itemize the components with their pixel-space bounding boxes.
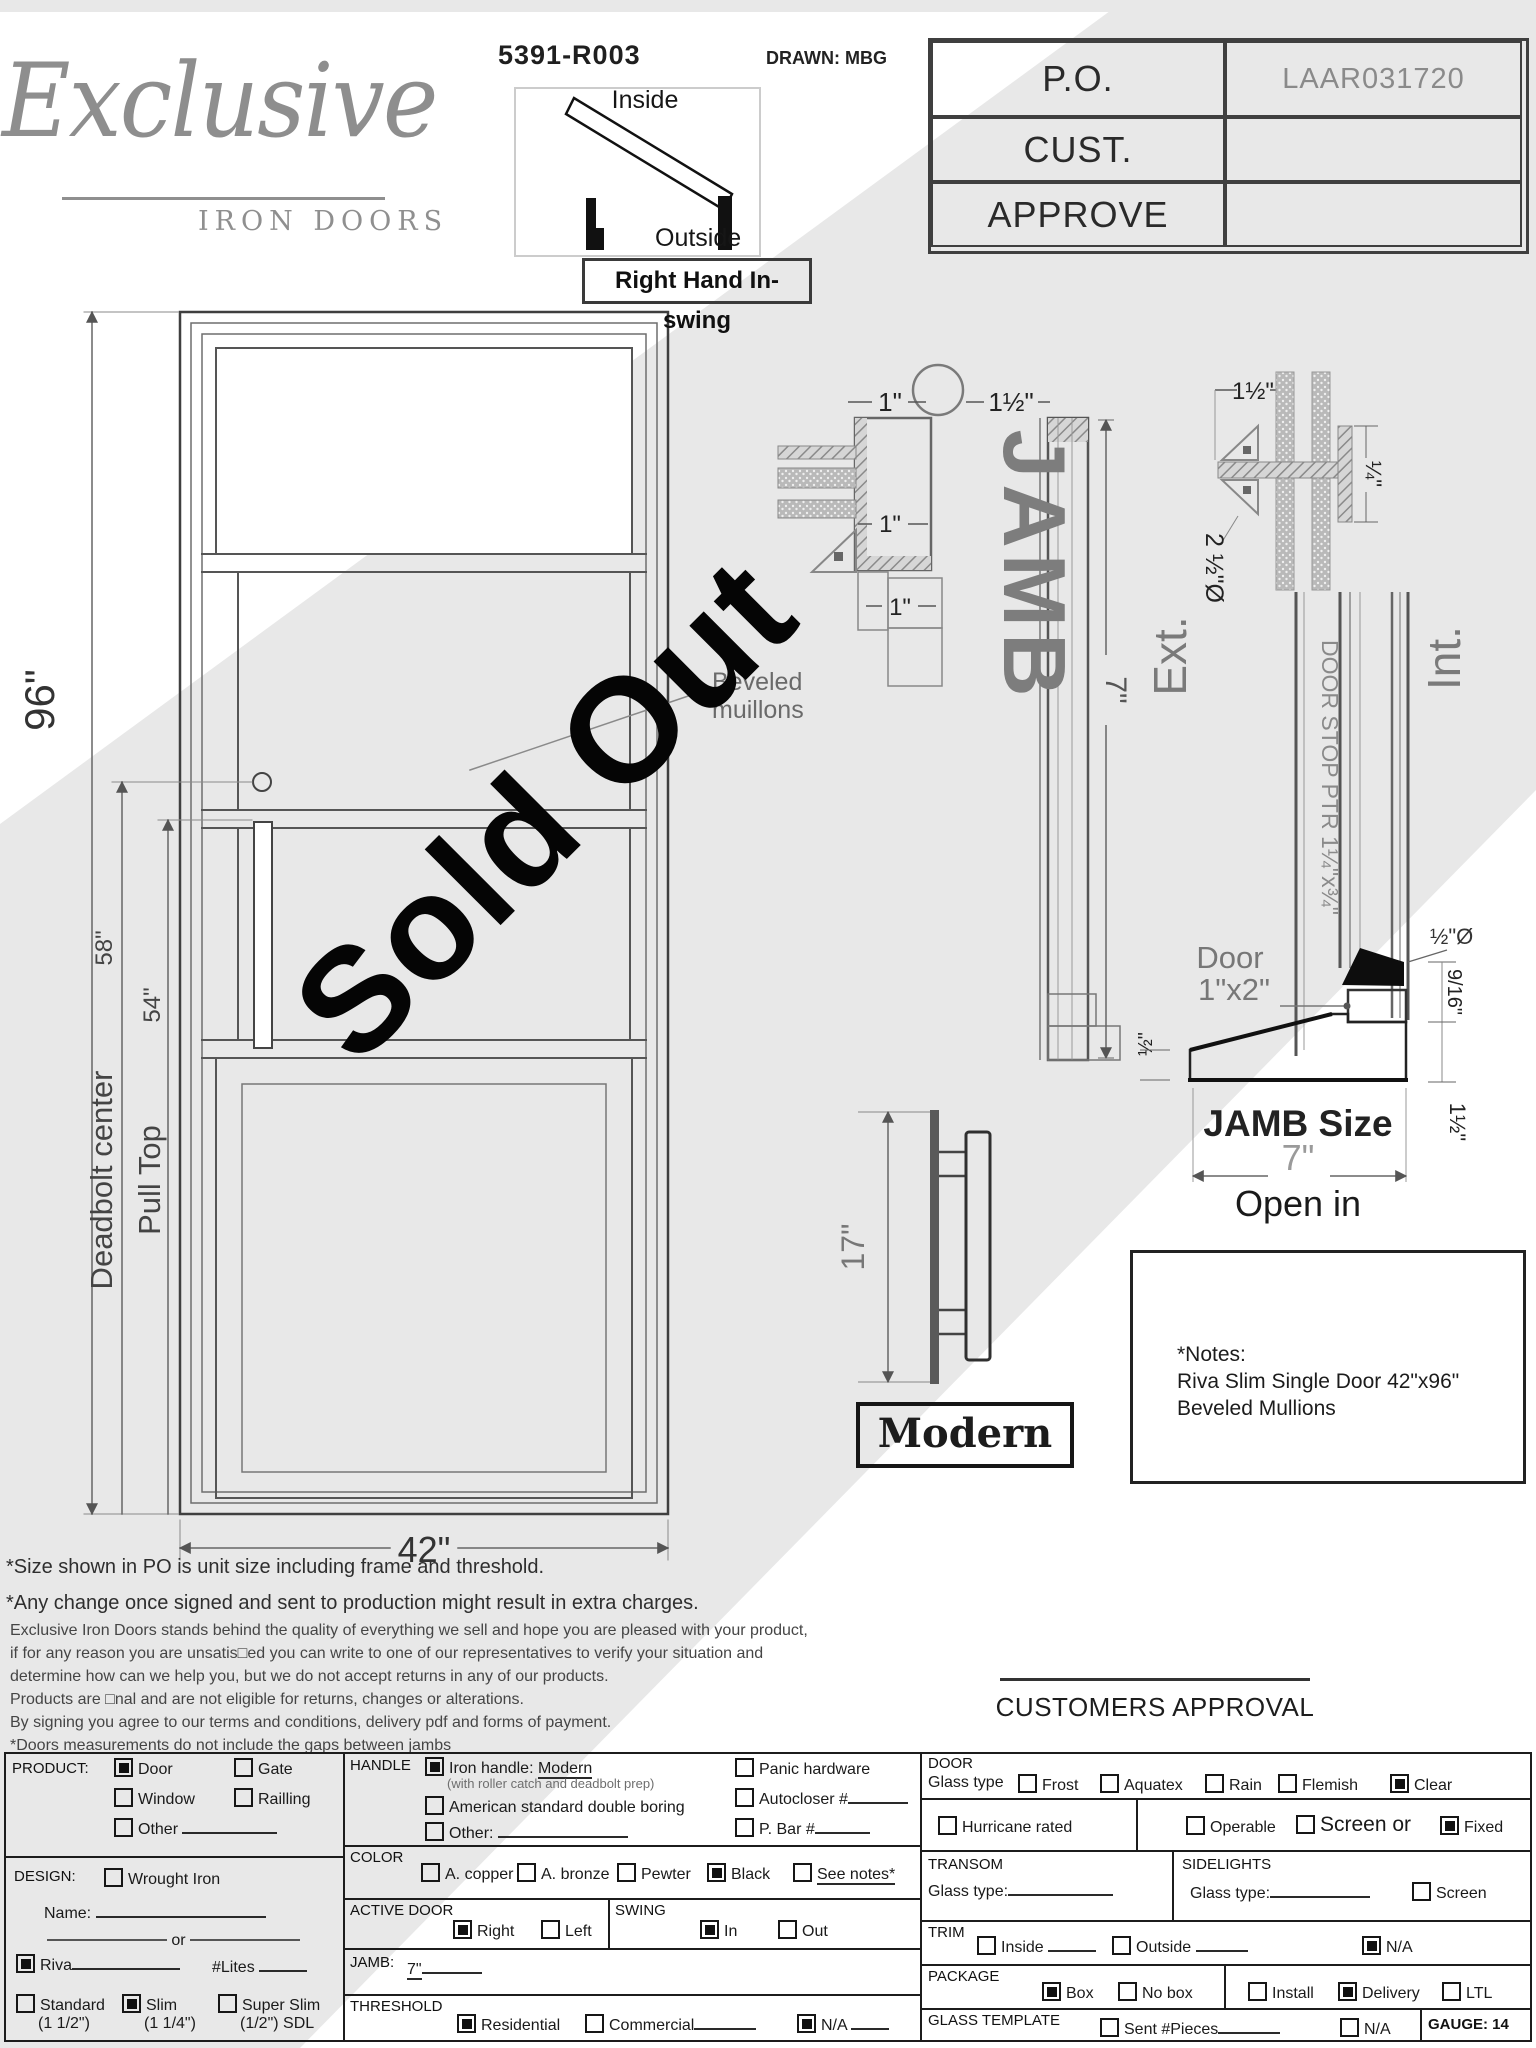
design-name-field[interactable]: Name:	[44, 1904, 266, 1923]
checkbox-install[interactable]	[1248, 1982, 1267, 2001]
design-slim-option[interactable]: Slim(1 1/4")	[122, 1994, 196, 2033]
color-title: COLOR	[350, 1849, 403, 1866]
pull-dim-value: 54"	[139, 987, 166, 1022]
form-sidelights-cell: SIDELIGHTS Glass type: Screen	[1172, 1850, 1532, 1922]
checkbox-product-other[interactable]	[114, 1818, 133, 1837]
checkbox-standard[interactable]	[16, 1994, 35, 2013]
cust-label: CUST.	[1023, 129, 1132, 171]
jamb-size-value: 7"	[1282, 1137, 1315, 1178]
notes-line1: *Notes:	[1177, 1341, 1246, 1368]
active-right-option[interactable]: Right	[453, 1920, 514, 1941]
active-door-title: ACTIVE DOOR	[350, 1902, 453, 1919]
handle-other-option[interactable]: Other:	[425, 1822, 628, 1843]
checkbox-bronze[interactable]	[517, 1863, 536, 1882]
pbar-blank[interactable]	[815, 1820, 870, 1834]
door-sec-title: DOOR	[928, 1755, 973, 1772]
sidelights-screen-option[interactable]: Screen	[1412, 1882, 1487, 1903]
autocloser-blank[interactable]	[848, 1790, 908, 1804]
checkbox-wrought-iron[interactable]	[104, 1868, 123, 1887]
int-label: Int.	[1418, 626, 1470, 690]
threshold-title: THRESHOLD	[350, 1998, 443, 2015]
checkbox-ltl[interactable]	[1442, 1982, 1461, 2001]
product-window-option[interactable]: Window	[114, 1788, 195, 1809]
notes-box: *Notes: Riva Slim Single Door 42"x96" Be…	[1130, 1250, 1526, 1484]
disclaimer-line1: *Size shown in PO is unit size including…	[6, 1556, 544, 1579]
checkbox-gate[interactable]	[234, 1758, 253, 1777]
disclaimer-line2: *Any change once signed and sent to prod…	[6, 1592, 699, 1615]
checkbox-fixed[interactable]	[1440, 1816, 1459, 1835]
jamb-dim-1-5: 1½"	[988, 387, 1033, 417]
checkbox-clear[interactable]	[1390, 1774, 1409, 1793]
checkbox-delivery[interactable]	[1338, 1982, 1357, 2001]
drawn-by: DRAWN: MBG	[766, 48, 887, 69]
checkbox-handle-other[interactable]	[425, 1822, 444, 1841]
design-riva-option[interactable]: Riva	[16, 1954, 180, 1975]
handle-title: HANDLE	[350, 1757, 411, 1774]
po-table: P.O. LAAR031720 CUST. APPROVE	[928, 38, 1529, 254]
logo-script: Exclusive	[2, 42, 437, 161]
lites-blank[interactable]	[259, 1958, 307, 1972]
checkbox-right[interactable]	[453, 1920, 472, 1939]
sent-pieces-blank[interactable]	[1218, 2020, 1280, 2034]
notes-line3: Beveled Mullions	[1177, 1395, 1336, 1422]
door-stop-label: DOOR STOP PTR 1¼"x¾"	[1317, 640, 1343, 915]
deadbolt-dim-value: 58"	[91, 930, 118, 965]
trim-inside-blank[interactable]	[1048, 1938, 1096, 1952]
swing-title: SWING	[615, 1902, 666, 1919]
checkbox-screen[interactable]	[1412, 1882, 1431, 1901]
form-gauge-cell: GAUGE: 14	[1420, 2008, 1532, 2042]
drawing-number: 5391-R003	[498, 40, 641, 71]
jamb-value-blank[interactable]	[422, 1960, 482, 1974]
checkbox-box[interactable]	[1042, 1982, 1061, 2001]
disclaimer-line3: Exclusive Iron Doors stands behind the q…	[10, 1622, 808, 1640]
checkbox-black[interactable]	[707, 1863, 726, 1882]
form-product-cell: PRODUCT: Door Gate Window Railling Other	[4, 1752, 345, 1858]
package-nobox-option[interactable]: No box	[1118, 1982, 1193, 2003]
checkbox-autocloser[interactable]	[735, 1788, 754, 1807]
door-glass-label: Glass type	[928, 1774, 1004, 1792]
form-package-cell: PACKAGE Box No box	[920, 1964, 1226, 2010]
handle-american-option[interactable]: American standard double boring	[425, 1796, 685, 1817]
form-operable-cell: Operable Screen or Fixed	[1136, 1798, 1532, 1852]
ext-label: Ext.	[1144, 616, 1196, 695]
dim-half: ½"	[1135, 1032, 1157, 1056]
handle-sub-note: (with roller catch and deadbolt prep)	[447, 1776, 654, 1791]
form-color-cell: COLOR A. copper A. bronze Pewter Black S…	[343, 1845, 922, 1900]
glass-aquatex-option[interactable]: Aquatex	[1100, 1774, 1183, 1795]
trim-outside-option[interactable]: Outside	[1112, 1936, 1248, 1957]
glass-frost-option[interactable]: Frost	[1018, 1774, 1078, 1795]
door-pull-handle	[254, 822, 272, 1048]
package-title: PACKAGE	[928, 1968, 999, 1985]
door-size-label-1: Door	[1196, 940, 1263, 975]
checkbox-screen-or[interactable]	[1296, 1815, 1315, 1834]
handle-iron-option[interactable]: Iron handle: Modern	[425, 1757, 592, 1778]
glass-clear-option[interactable]: Clear	[1390, 1774, 1452, 1795]
approve-label: APPROVE	[987, 194, 1168, 236]
deadbolt-circle	[253, 773, 271, 791]
order-sheet: Inside Outside	[0, 0, 1536, 2048]
disclaimer-line5: determine how can we help you, but we do…	[10, 1668, 609, 1686]
section-dim-2half-dia: 2 ½"Ø	[1200, 533, 1228, 603]
color-pewter-option[interactable]: Pewter	[617, 1863, 691, 1884]
trim-inside-option[interactable]: Inside	[977, 1936, 1096, 1957]
handle-dim: 17"	[835, 1224, 871, 1271]
handle-autocloser-option[interactable]: Autocloser #	[735, 1788, 908, 1809]
glass-flemish-option[interactable]: Flemish	[1278, 1774, 1358, 1795]
logo-subtitle: IRON DOORS	[198, 206, 448, 237]
product-gate-option[interactable]: Gate	[234, 1758, 293, 1779]
operable-option[interactable]: Operable	[1186, 1816, 1276, 1837]
threshold-residential-option[interactable]: Residential	[457, 2014, 560, 2035]
transom-glass-blank[interactable]	[1008, 1882, 1113, 1896]
trim-na-option[interactable]: N/A	[1362, 1936, 1413, 1957]
package-install-option[interactable]: Install	[1248, 1982, 1314, 2003]
form-package-ship-cell: Install Delivery LTL	[1224, 1964, 1532, 2010]
product-other-option[interactable]: Other	[114, 1818, 277, 1839]
swing-caption: Right Hand In-swing	[582, 258, 812, 304]
jamb-row-title: JAMB:	[350, 1954, 394, 1971]
disclaimer-line7: By signing you agree to our terms and co…	[10, 1714, 611, 1732]
package-ltl-option[interactable]: LTL	[1442, 1982, 1492, 2003]
section-dim-1-5: 1½"	[1232, 378, 1274, 405]
checkbox-trim-outside[interactable]	[1112, 1936, 1131, 1955]
dim-9-16: 9/16"	[1443, 969, 1465, 1015]
handle-other-blank[interactable]	[498, 1824, 628, 1838]
design-standard-option[interactable]: Standard(1 1/2")	[16, 1994, 105, 2033]
swing-inside-label: Inside	[612, 86, 679, 114]
jamb-dim-1c: 1"	[889, 594, 911, 621]
dim-1-1-2: 1½"	[1445, 1103, 1470, 1141]
fixed-option[interactable]: Fixed	[1440, 1816, 1503, 1837]
checkbox-trim-na[interactable]	[1362, 1936, 1381, 1955]
checkbox-left[interactable]	[541, 1920, 560, 1939]
half-dia-note: ½"Ø	[1430, 924, 1473, 949]
product-other-blank[interactable]	[182, 1820, 277, 1834]
form-glass-template-cell: GLASS TEMPLATE Sent #Pieces N/A	[920, 2008, 1422, 2042]
jamb-title: JAMB	[985, 429, 1084, 702]
po-value[interactable]: LAAR031720	[1282, 63, 1465, 96]
glass-rain-option[interactable]: Rain	[1205, 1774, 1262, 1795]
checkbox-pewter[interactable]	[617, 1863, 636, 1882]
threshold-section-detail: 1½" ¼" 2 ½"Ø Ext. Int.	[1135, 372, 1473, 1224]
handle-detail: 17"	[835, 1110, 990, 1384]
active-left-option[interactable]: Left	[541, 1920, 592, 1941]
color-bronze-option[interactable]: A. bronze	[517, 1863, 609, 1884]
product-title: PRODUCT:	[12, 1760, 89, 1777]
trim-title: TRIM	[928, 1924, 965, 1941]
jamb-row-value[interactable]: 7"	[407, 1960, 482, 1979]
product-door-option[interactable]: Door	[114, 1758, 173, 1779]
threshold-commercial-option[interactable]: Commercial	[585, 2014, 756, 2035]
color-copper-option[interactable]: A. copper	[421, 1863, 513, 1884]
checkbox-panic[interactable]	[735, 1758, 754, 1777]
form-hurricane-cell: Hurricane rated	[920, 1798, 1138, 1852]
swing-in-option[interactable]: In	[700, 1920, 737, 1941]
checkbox-operable[interactable]	[1186, 1816, 1205, 1835]
swing-diagram: Inside Outside	[515, 86, 760, 256]
glass-sent-option[interactable]: Sent #Pieces	[1100, 2018, 1280, 2039]
sidelights-title: SIDELIGHTS	[1182, 1856, 1271, 1873]
form-door-glass-cell: DOOR Glass type Frost Aquatex Rain Flemi…	[920, 1752, 1532, 1800]
trim-outside-blank[interactable]	[1196, 1938, 1248, 1952]
checkbox-residential[interactable]	[457, 2014, 476, 2033]
hurricane-option[interactable]: Hurricane rated	[938, 1816, 1072, 1837]
checkbox-window[interactable]	[114, 1788, 133, 1807]
design-name-blank[interactable]	[96, 1904, 266, 1918]
checkbox-aquatex[interactable]	[1100, 1774, 1119, 1793]
form-transom-cell: TRANSOM Glass type:	[920, 1850, 1174, 1922]
riva-blank[interactable]	[72, 1956, 180, 1970]
gauge-value: GAUGE: 14	[1428, 2016, 1509, 2033]
approval-label: CUSTOMERS APPROVAL	[985, 1692, 1325, 1723]
checkbox-super-slim[interactable]	[218, 1994, 237, 2013]
checkbox-american-boring[interactable]	[425, 1796, 444, 1815]
form-active-door-cell: ACTIVE DOOR Right Left	[343, 1898, 610, 1950]
checkbox-trim-inside[interactable]	[977, 1936, 996, 1955]
design-super-slim-option[interactable]: Super Slim(1/2") SDL	[218, 1994, 320, 2033]
package-box-option[interactable]: Box	[1042, 1982, 1094, 2003]
checkbox-copper[interactable]	[421, 1863, 440, 1882]
glass-na-option[interactable]: N/A	[1340, 2018, 1391, 2039]
threshold-na-option[interactable]: N/A	[797, 2014, 889, 2035]
pull-dim-label: Pull Top	[132, 1125, 167, 1235]
product-railing-option[interactable]: Railling	[234, 1788, 310, 1809]
checkbox-threshold-na[interactable]	[797, 2014, 816, 2033]
checkbox-iron-handle[interactable]	[425, 1757, 444, 1776]
screen-or-option[interactable]: Screen or	[1296, 1813, 1411, 1837]
checkbox-out[interactable]	[778, 1920, 797, 1939]
threshold-na-blank[interactable]	[851, 2016, 889, 2030]
section-dim-quarter: ¼"	[1361, 461, 1386, 487]
form-threshold-cell: THRESHOLD Residential Commercial N/A	[343, 1994, 922, 2042]
glass-template-title: GLASS TEMPLATE	[928, 2012, 1060, 2029]
form-trim-cell: TRIM Inside Outside N/A	[920, 1920, 1532, 1966]
transom-glass-field[interactable]: Glass type:	[928, 1882, 1113, 1901]
checkbox-commercial[interactable]	[585, 2014, 604, 2033]
design-or-separator: or	[16, 1932, 331, 1950]
door-height-dim: 96"	[16, 669, 63, 731]
design-wrought-option[interactable]: Wrought Iron	[104, 1868, 220, 1889]
po-label: P.O.	[1042, 58, 1113, 100]
sidelights-glass-blank[interactable]	[1270, 1884, 1370, 1898]
package-delivery-option[interactable]: Delivery	[1338, 1982, 1420, 2003]
form-design-cell: DESIGN: Wrought Iron Name: or Riva #Lite…	[4, 1856, 345, 2042]
form-handle-cell: HANDLE Iron handle: Modern (with roller …	[343, 1752, 922, 1847]
swing-outside-label: Outside	[655, 224, 741, 252]
checkbox-slim[interactable]	[122, 1994, 141, 2013]
jamb-dim-1b: 1"	[879, 511, 901, 538]
form-jamb-cell: JAMB: 7"	[343, 1948, 922, 1996]
approval-signature-line[interactable]	[1000, 1678, 1310, 1681]
transom-title: TRANSOM	[928, 1856, 1003, 1873]
jamb-detail: 1" 1½" 1" 1"	[778, 365, 1132, 1060]
handle-pbar-option[interactable]: P. Bar #	[735, 1818, 870, 1839]
disclaimer-line6: Products are □nal and are not eligible f…	[10, 1691, 524, 1709]
checkbox-glass-na[interactable]	[1340, 2018, 1359, 2037]
disclaimer-line4: if for any reason you are unsatis□ed you…	[10, 1645, 763, 1663]
checkbox-nobox[interactable]	[1118, 1982, 1137, 2001]
color-see-notes-option[interactable]: See notes*	[793, 1863, 895, 1884]
checkbox-riva[interactable]	[16, 1954, 35, 1973]
notes-line2: Riva Slim Single Door 42"x96"	[1177, 1368, 1459, 1395]
swing-out-option[interactable]: Out	[778, 1920, 828, 1941]
color-black-option[interactable]: Black	[707, 1863, 770, 1884]
handle-style-caption: Modern	[856, 1402, 1074, 1468]
checkbox-railing[interactable]	[234, 1788, 253, 1807]
checkbox-in[interactable]	[700, 1920, 719, 1939]
open-in-label: Open in	[1235, 1183, 1361, 1224]
checkbox-frost[interactable]	[1018, 1774, 1037, 1793]
checkbox-door[interactable]	[114, 1758, 133, 1777]
design-title: DESIGN:	[14, 1868, 76, 1885]
sidelights-glass-field[interactable]: Glass type:	[1190, 1884, 1370, 1903]
checkbox-sent-pieces[interactable]	[1100, 2018, 1119, 2037]
design-lites-field[interactable]: #Lites	[212, 1958, 307, 1977]
form-swing-cell: SWING In Out	[608, 1898, 922, 1950]
checkbox-hurricane[interactable]	[938, 1816, 957, 1835]
checkbox-see-notes[interactable]	[793, 1863, 812, 1882]
checkbox-rain[interactable]	[1205, 1774, 1224, 1793]
handle-panic-option[interactable]: Panic hardware	[735, 1758, 870, 1779]
jamb-dim-7: 7"	[1099, 676, 1132, 703]
door-size-label-2: 1"x2"	[1198, 972, 1270, 1007]
deadbolt-dim-label: Deadbolt center	[84, 1071, 119, 1290]
checkbox-flemish[interactable]	[1278, 1774, 1297, 1793]
commercial-blank[interactable]	[694, 2016, 756, 2030]
jamb-dim-1: 1"	[878, 387, 902, 417]
checkbox-pbar[interactable]	[735, 1818, 754, 1837]
logo-underline	[62, 197, 385, 200]
